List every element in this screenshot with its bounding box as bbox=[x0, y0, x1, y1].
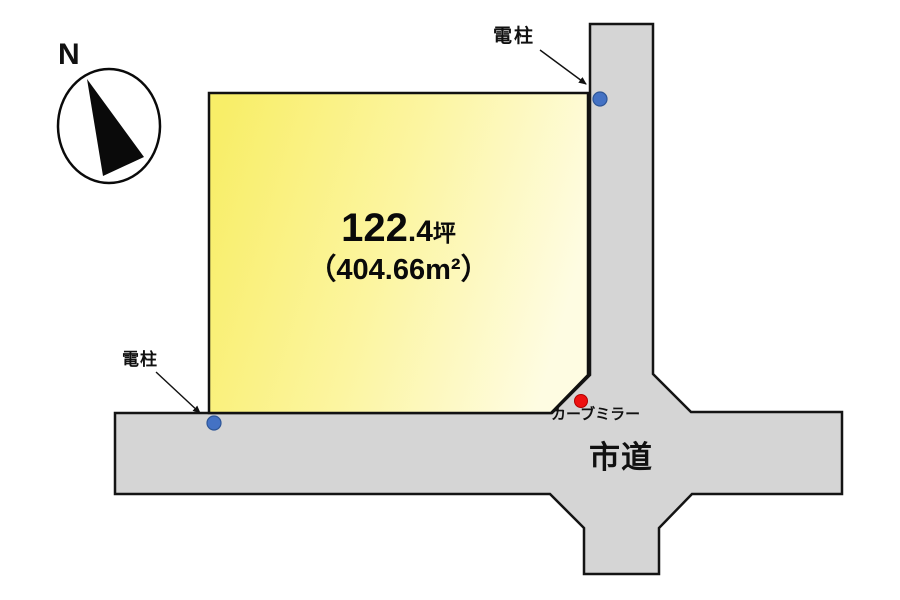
compass-north-label: N bbox=[58, 38, 80, 71]
pole-leader-arrow-top bbox=[540, 50, 586, 84]
curve-mirror-label: カーブミラー bbox=[551, 407, 640, 424]
utility-pole-dot-top bbox=[593, 92, 607, 106]
utility-pole-label-top: 電柱 bbox=[493, 27, 535, 48]
area-tsubo-frac: .4 bbox=[408, 215, 433, 248]
utility-pole-label-bottom: 電柱 bbox=[122, 351, 158, 370]
plot-area-tsubo: 122.4坪 bbox=[209, 205, 588, 251]
plot-area-text: 122.4坪 （404.66m²） bbox=[209, 205, 588, 287]
utility-pole-dot-bottom bbox=[207, 416, 221, 430]
city-road-label: 市道 bbox=[589, 441, 653, 475]
site-plan-drawing bbox=[0, 0, 900, 600]
area-tsubo-unit: 坪 bbox=[433, 220, 456, 246]
pole-leader-arrow-bottom bbox=[156, 372, 200, 413]
site-plan-diagram: N 電柱 電柱 カーブミラー 市道 122.4坪 （404.66m²） bbox=[0, 0, 900, 600]
curve-mirror-dot bbox=[575, 395, 588, 408]
area-tsubo-int: 122 bbox=[341, 206, 408, 250]
plot-area-m2: （404.66m²） bbox=[209, 255, 588, 287]
north-arrow-icon bbox=[87, 79, 144, 176]
